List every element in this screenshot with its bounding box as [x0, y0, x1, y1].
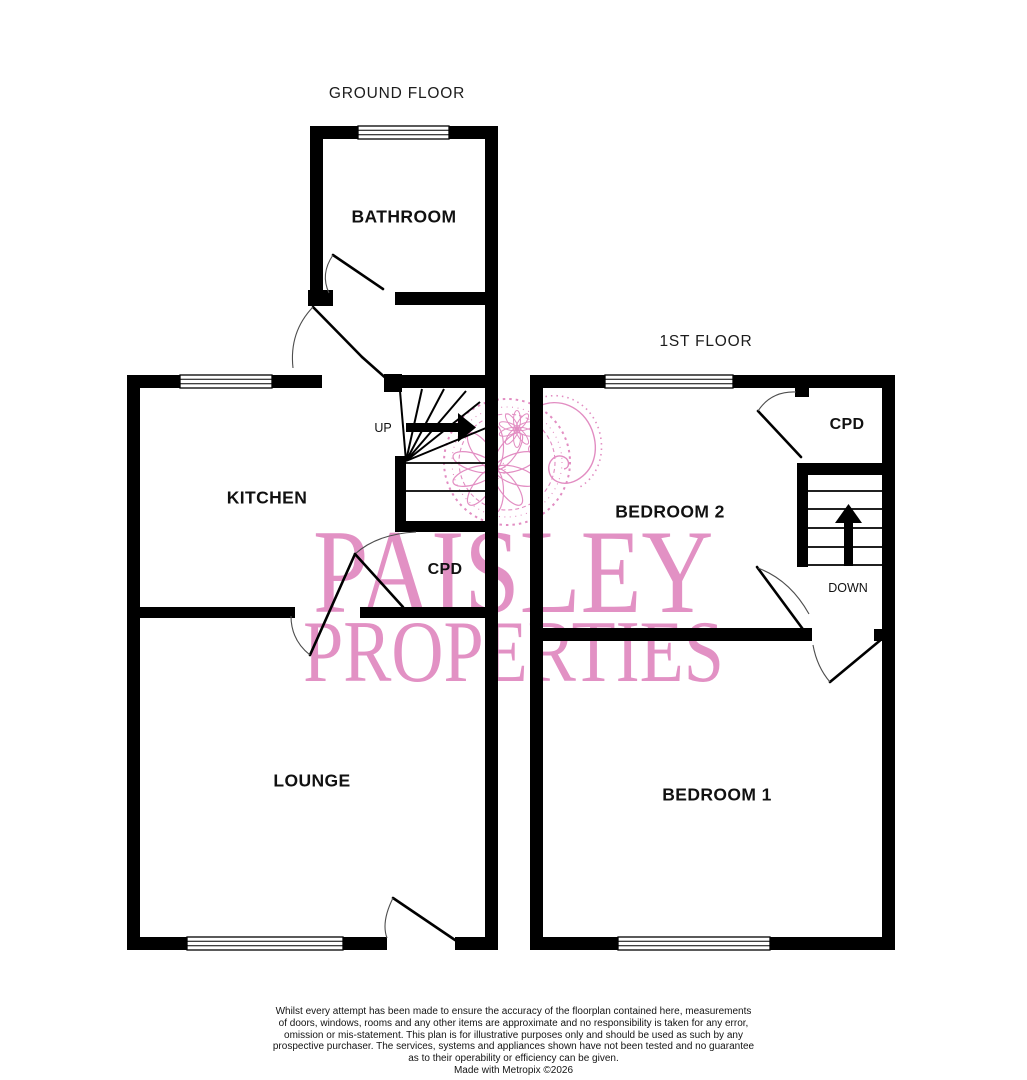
room-label-cpd-ground: CPD: [428, 561, 463, 579]
ground-floor-title: GROUND FLOOR: [329, 85, 465, 103]
staircase-ground: [400, 389, 486, 491]
first-floor-plan: [530, 375, 895, 950]
floorplan-drawing: [0, 0, 1027, 1080]
stairs-up-label: UP: [374, 421, 391, 435]
ground-floor-doors: [291, 255, 455, 940]
room-label-bedroom2: BEDROOM 2: [615, 502, 725, 523]
ground-floor-plan: [127, 126, 498, 950]
paisley-ornament: [444, 396, 602, 525]
bathroom-window: [358, 126, 449, 139]
room-label-cpd-first: CPD: [830, 416, 865, 434]
ornament-paisley-hook: [537, 403, 595, 484]
staircase-first: [808, 491, 882, 566]
stairs-down-label: DOWN: [828, 581, 868, 595]
room-label-lounge: LOUNGE: [273, 771, 350, 792]
disclaimer: Whilst every attempt has been made to en…: [0, 1006, 1027, 1077]
disclaimer-line: as to their operability or efficiency ca…: [0, 1053, 1027, 1065]
down-arrow-icon: [835, 504, 862, 566]
room-label-bathroom: BATHROOM: [352, 207, 457, 228]
disclaimer-line: Whilst every attempt has been made to en…: [0, 1006, 1027, 1018]
lounge-window: [187, 937, 343, 950]
room-label-kitchen: KITCHEN: [227, 488, 308, 509]
room-label-bedroom1: BEDROOM 1: [662, 785, 772, 806]
metropix-credit: Made with Metropix ©2026: [0, 1065, 1027, 1077]
disclaimer-line: of doors, windows, rooms and any other i…: [0, 1018, 1027, 1030]
disclaimer-line: omission or mis-statement. This plan is …: [0, 1030, 1027, 1042]
floorplan-page: PAISLEY PROPERTIES: [0, 0, 1027, 1080]
bedroom2-window: [605, 375, 733, 388]
kitchen-window: [180, 375, 272, 388]
first-floor-title: 1ST FLOOR: [659, 333, 752, 351]
bedroom1-window: [618, 937, 770, 950]
disclaimer-line: prospective purchaser. The services, sys…: [0, 1041, 1027, 1053]
